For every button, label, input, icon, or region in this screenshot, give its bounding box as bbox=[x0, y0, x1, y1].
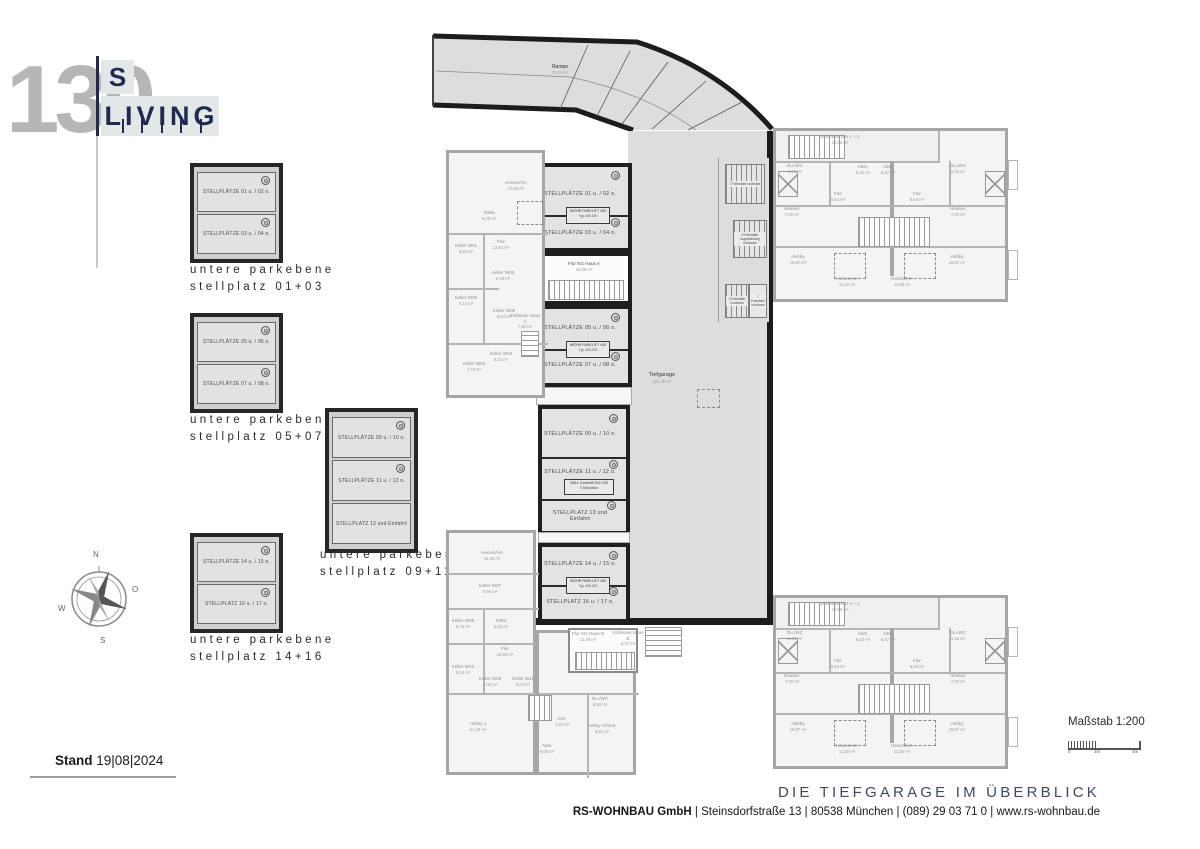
stall-divider bbox=[542, 457, 626, 459]
company-name: RS-WOHNBAU GmbH bbox=[573, 806, 692, 818]
room-label: Hobby18,87 m² bbox=[937, 254, 977, 265]
bike-rack-label: 7 Fahrräder hochkant bbox=[750, 294, 766, 308]
balcony-stub bbox=[1008, 627, 1018, 657]
room-label: Hauswi.7,00 m² bbox=[938, 206, 978, 217]
room-label: Keller W115,04 m² bbox=[505, 676, 541, 687]
company-address: | Steinsdorfstraße 13 | 80538 München | … bbox=[692, 806, 1100, 818]
parklift-box: WÖHR PARKLIFT 405 Typ 405-200 bbox=[566, 207, 610, 224]
stairs bbox=[858, 684, 930, 714]
room-label: Hauswi.7,00 m² bbox=[938, 673, 978, 684]
stall-divider bbox=[542, 499, 626, 501]
bike-rack-label: 7 Fahrräder hochkant bbox=[729, 181, 761, 187]
shower-icon bbox=[778, 638, 798, 664]
room-label: Hobby 121,20 m² bbox=[458, 721, 498, 732]
room-label: Du./WC5,28 m² bbox=[775, 630, 815, 641]
room-label: Schleuse Haus B6,37 m² bbox=[612, 630, 644, 647]
shower-icon bbox=[985, 638, 1005, 664]
room-label: Flur8,64 m² bbox=[818, 658, 858, 669]
lift-type: WÖHR PARKLIFT 405 bbox=[567, 209, 609, 214]
room-label: Du./WC6,50 m² bbox=[580, 696, 620, 707]
room-label: Flur15,90 m² bbox=[485, 646, 525, 657]
scale-line bbox=[1068, 748, 1141, 750]
scale-tick-label: 4m bbox=[1132, 749, 1138, 754]
balcony-stub bbox=[1008, 160, 1018, 190]
bike-rack: 3 Fahrräder hochkant bbox=[725, 284, 749, 318]
room-label: Hobby18,87 m² bbox=[937, 721, 977, 732]
room-area: 421,36 m² bbox=[632, 379, 692, 384]
parklift-icon bbox=[611, 218, 620, 227]
room-label: Keller W076,65 m² bbox=[470, 583, 510, 594]
stall-label: STELLPLÄTZE 05 u. / 06 o. bbox=[540, 325, 620, 331]
room-label: Flur KG Haus A 18,55 m² bbox=[564, 261, 604, 272]
scale-end-tick bbox=[1139, 741, 1141, 749]
stall-label: STELLPLÄTZE 01 u. / 02 o. bbox=[540, 191, 620, 197]
room-name: Flur KG Haus A bbox=[564, 261, 604, 267]
ramp-label: Rampe 75,44 m² bbox=[535, 64, 585, 76]
stall-label: STELLPLÄTZE 07 u. / 08 o. bbox=[540, 362, 620, 368]
room-label: Heizen/HA11,56 m² bbox=[827, 276, 867, 287]
parklift-icon bbox=[611, 313, 620, 322]
bike-strip: 7 Fahrräder hochkant 8 Fahrräder doppels… bbox=[718, 158, 769, 322]
scale-tick-label: 0 bbox=[1068, 749, 1071, 754]
stairs bbox=[858, 217, 930, 247]
room-label: Keller W105,16 m² bbox=[446, 664, 480, 675]
lift-type: Typ 405-200 bbox=[567, 584, 609, 588]
stand-rule bbox=[30, 776, 176, 778]
room-label: Hobby18,87 m² bbox=[778, 721, 818, 732]
room-label: Vorr.7,20 m² bbox=[542, 716, 582, 727]
duct-marker bbox=[517, 201, 543, 225]
room-label: Schleuse WH 3 + 412,56 m² bbox=[810, 601, 870, 612]
room-label: Abst.5,42 m² bbox=[872, 164, 904, 175]
room-label: Schleuse WH 1 + 212,56 m² bbox=[810, 134, 870, 145]
room-label: Abst.5,42 m² bbox=[872, 631, 904, 642]
room-label: Keller W037,76 m² bbox=[454, 361, 494, 372]
room-label: Flur8,64 m² bbox=[897, 658, 937, 669]
room-area: 18,55 m² bbox=[564, 267, 604, 272]
garage-section-09-13: STELLPLÄTZE 09 u. / 10 o. STELLPLÄTZE 11… bbox=[538, 405, 630, 535]
lift-type: Wöhr Combilift 542-205 bbox=[565, 481, 613, 486]
garage-label: Tiefgarage 421,36 m² bbox=[632, 372, 692, 384]
lift-type: Typ 405-200 bbox=[567, 348, 609, 352]
balcony-stub bbox=[1008, 250, 1018, 280]
stairs bbox=[645, 627, 682, 657]
parklift-box: WÖHR PARKLIFT 405 Typ 405-200 bbox=[566, 341, 610, 358]
stall-label: STELLPLÄTZE 03 u. / 04 o. bbox=[540, 230, 620, 236]
shower-icon bbox=[778, 171, 798, 197]
room-label: Keller W015,53 m² bbox=[446, 243, 486, 254]
stall-label: STELLPLÄTZE 14 u. / 15 o. bbox=[542, 561, 618, 567]
flur-kg-haus-a: Flur KG Haus A 18,55 m² bbox=[536, 252, 632, 305]
scale-label: Maßstab 1:200 bbox=[1068, 716, 1145, 728]
stairs bbox=[521, 331, 539, 357]
room-label: Heizen/HA11,56 m² bbox=[882, 743, 922, 754]
combilift-box: Wöhr Combilift 542-205 5 Stellplätze bbox=[564, 479, 614, 495]
door-gap bbox=[536, 387, 632, 405]
room-label: Hauswi.7,00 m² bbox=[772, 673, 812, 684]
stairs bbox=[548, 280, 624, 300]
room-label: Flur12,91 m² bbox=[481, 239, 521, 250]
room-area: 75,44 m² bbox=[535, 70, 585, 75]
room-label: Heizen/HA11,56 m² bbox=[882, 276, 922, 287]
room-label: Schleuse Haus A7,64 m² bbox=[508, 313, 542, 330]
stairs bbox=[575, 652, 635, 670]
page-title: DIE TIEFGARAGE IM ÜBERBLICK bbox=[700, 784, 1100, 801]
room-label: Keller W025,14 m² bbox=[446, 295, 486, 306]
stall-label: STELLPLÄTZE 11 u. / 12 o. bbox=[542, 469, 618, 475]
bike-rack-label: 8 Fahrräder doppelstöckig hochkant bbox=[734, 232, 766, 246]
bike-rack: 7 Fahrräder hochkant bbox=[725, 164, 765, 204]
room-label: Hobby18,87 m² bbox=[778, 254, 818, 265]
room-label: Heizen/HA14,46 m² bbox=[472, 550, 512, 561]
room-label: Heizen/HA17,06 m² bbox=[496, 180, 536, 191]
stand-label: Stand bbox=[55, 753, 93, 768]
room-label: Abst.6,05 m² bbox=[527, 743, 567, 754]
garage-section-05-08: STELLPLÄTZE 05 u. / 06 o. STELLPLÄTZE 07… bbox=[536, 305, 632, 387]
parklift-icon bbox=[607, 501, 616, 510]
parklift-icon bbox=[609, 414, 618, 423]
parklift-icon bbox=[611, 352, 620, 361]
room-label: Du./WC5,28 m² bbox=[938, 163, 978, 174]
room-label: Du./WC5,28 m² bbox=[775, 163, 815, 174]
parklift-icon bbox=[609, 587, 618, 596]
room-label: KiWa6,08 m² bbox=[469, 210, 509, 221]
stand-date: Stand 19|08|2024 bbox=[55, 753, 163, 768]
room-label: Keller W096,76 m² bbox=[446, 618, 480, 629]
bike-rack: 7 Fahrräder hochkant bbox=[749, 284, 767, 318]
bike-rack-label: 3 Fahrräder hochkant bbox=[726, 296, 748, 306]
stall-label: STELLPLATZ 13 und Einfahrt bbox=[542, 510, 618, 522]
balcony-stub bbox=[1008, 717, 1018, 747]
lift-type: WÖHR PARKLIFT 405 bbox=[567, 343, 609, 348]
room-label: Flur KG Haus B11,29 m² bbox=[570, 631, 606, 642]
room-label: Heizen/HA11,56 m² bbox=[827, 743, 867, 754]
bike-rack: 8 Fahrräder doppelstöckig hochkant bbox=[733, 220, 767, 258]
stand-value: 19|08|2024 bbox=[96, 753, 163, 768]
garage-section-14-17: STELLPLÄTZE 14 u. / 15 o. STELLPLATZ 16 … bbox=[538, 543, 630, 623]
room-label: Hauswi.7,00 m² bbox=[772, 206, 812, 217]
lift-type: 5 Stellplätze bbox=[565, 486, 613, 490]
lift-type: WÖHR PARKLIFT 405 bbox=[567, 579, 609, 584]
parklift-icon bbox=[611, 171, 620, 180]
page: 130 S LIVING STELLPLÄTZE 01 u. / 02 o. S… bbox=[0, 0, 1200, 849]
door-gap bbox=[538, 532, 630, 543]
parklift-icon bbox=[609, 460, 618, 469]
room-label: Hobby 2/Abst.8,81 m² bbox=[582, 723, 622, 734]
stall-label: STELLPLÄTZE 09 u. / 10 o. bbox=[542, 431, 618, 437]
room-label: Keller W066,46 m² bbox=[483, 270, 523, 281]
parklift-box: WÖHR PARKLIFT 405 Typ 405-200 bbox=[566, 577, 610, 594]
room-name: Tiefgarage bbox=[632, 372, 692, 379]
scale-bar: 0 2m 4m bbox=[1068, 740, 1144, 756]
parklift-icon bbox=[609, 551, 618, 560]
garage-section-01-04: STELLPLÄTZE 01 u. / 02 o. STELLPLÄTZE 03… bbox=[536, 163, 632, 252]
room-label: Flur8,64 m² bbox=[897, 191, 937, 202]
room-label: KiWa5,23 m² bbox=[484, 618, 518, 629]
shower-icon bbox=[985, 171, 1005, 197]
reserved-area-marker bbox=[697, 389, 720, 408]
stall-label: STELLPLATZ 16 u. / 17 o. bbox=[542, 599, 618, 605]
room-label: Du./WC5,28 m² bbox=[938, 630, 978, 641]
lift-type: Typ 405-200 bbox=[567, 214, 609, 218]
address-line: RS-WOHNBAU GmbH | Steinsdorfstraße 13 | … bbox=[500, 806, 1100, 818]
room-label: Keller W085,06 m² bbox=[472, 676, 508, 687]
scale-tick-label: 2m bbox=[1094, 749, 1100, 754]
room-label: Flur8,64 m² bbox=[818, 191, 858, 202]
